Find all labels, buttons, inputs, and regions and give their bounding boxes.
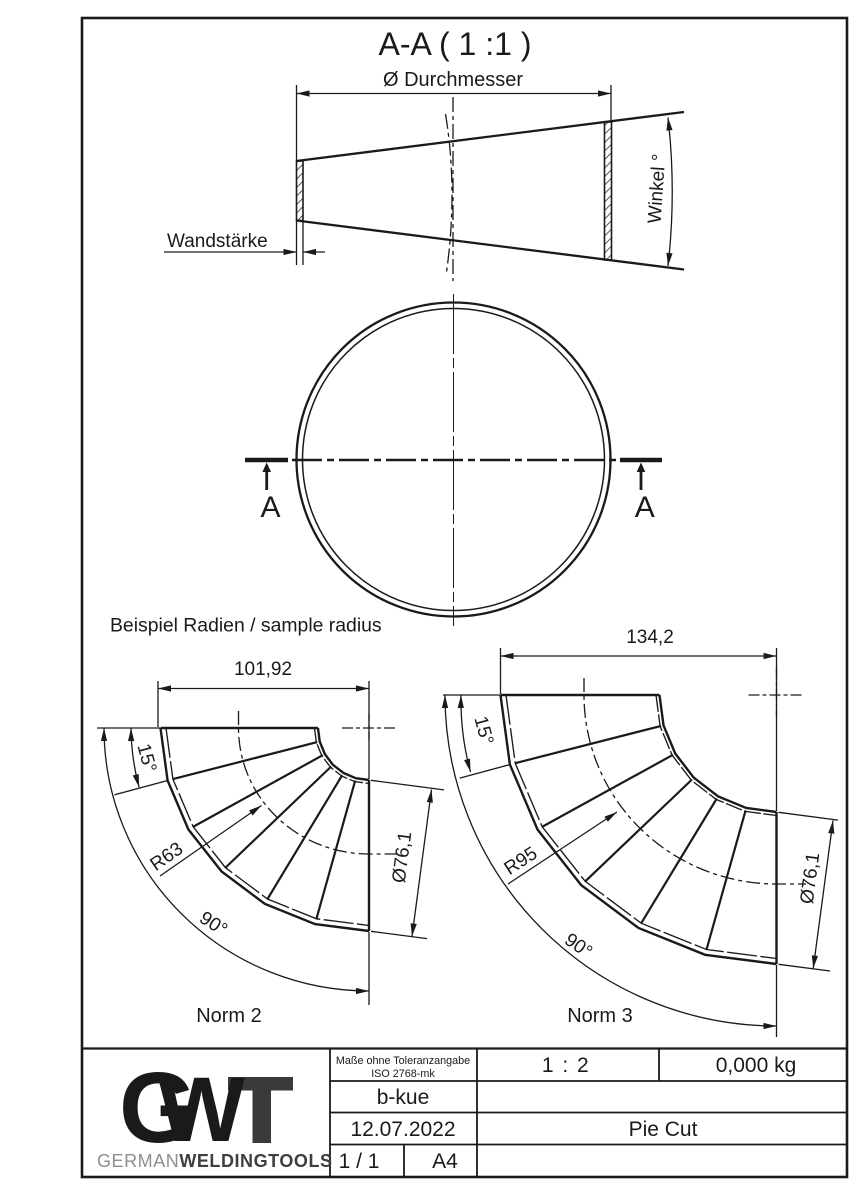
svg-text:A: A [635, 491, 655, 524]
svg-text:Ø Durchmesser: Ø Durchmesser [383, 69, 523, 91]
svg-text:A: A [260, 491, 280, 524]
svg-text:1 / 1: 1 / 1 [339, 1150, 380, 1173]
svg-text:GERMANWELDINGTOOLS: GERMANWELDINGTOOLS [97, 1151, 333, 1171]
svg-text:b-kue: b-kue [377, 1086, 430, 1109]
svg-text:101,92: 101,92 [234, 659, 292, 680]
svg-text:Beispiel Radien / sample radiu: Beispiel Radien / sample radius [110, 615, 382, 637]
svg-text:ISO 2768-mk: ISO 2768-mk [371, 1068, 435, 1080]
svg-text:Norm 3: Norm 3 [567, 1005, 633, 1027]
svg-text:1 : 2: 1 : 2 [542, 1054, 590, 1077]
svg-text:A4: A4 [432, 1150, 458, 1173]
svg-text:A-A ( 1 :1 ): A-A ( 1 :1 ) [379, 26, 532, 62]
svg-text:Maße ohne Toleranzangabe: Maße ohne Toleranzangabe [336, 1055, 470, 1067]
svg-text:Wandstärke: Wandstärke [167, 231, 268, 252]
svg-text:Norm 2: Norm 2 [196, 1005, 262, 1027]
svg-text:0,000 kg: 0,000 kg [716, 1054, 797, 1077]
svg-text:W: W [158, 1059, 245, 1161]
svg-text:12.07.2022: 12.07.2022 [350, 1118, 455, 1141]
svg-text:134,2: 134,2 [626, 627, 674, 648]
svg-text:Pie Cut: Pie Cut [629, 1118, 698, 1141]
